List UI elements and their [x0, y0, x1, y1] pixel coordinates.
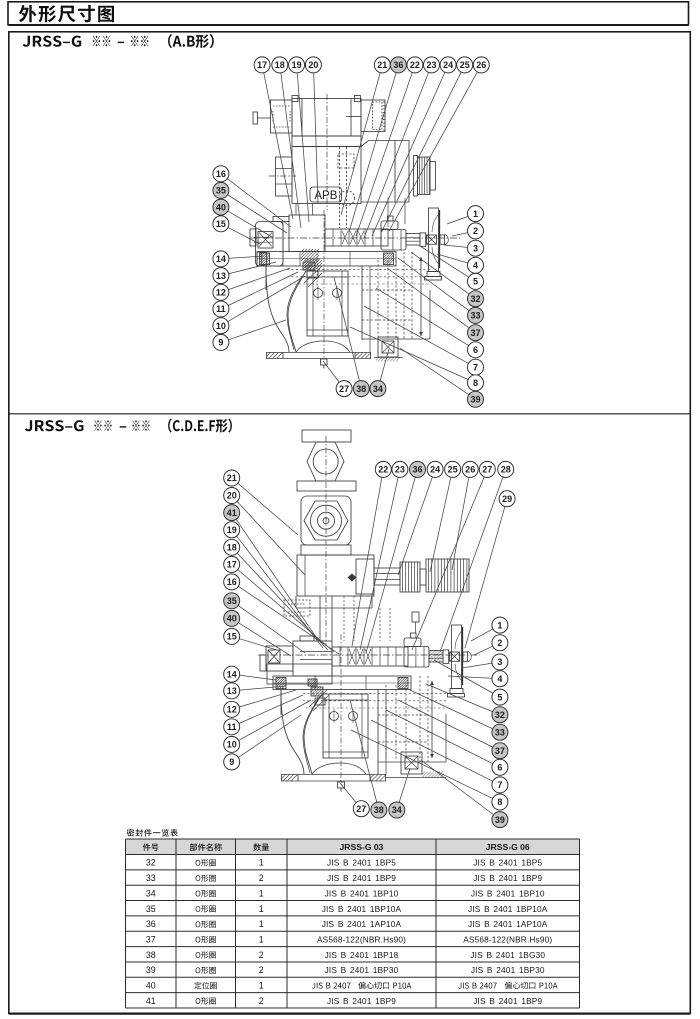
svg-text:27: 27: [356, 804, 366, 814]
svg-text:34: 34: [146, 888, 156, 898]
svg-text:20: 20: [227, 491, 237, 501]
svg-text:14: 14: [216, 254, 226, 264]
svg-text:2: 2: [259, 873, 264, 883]
svg-text:JRSS-G 03: JRSS-G 03: [340, 842, 384, 852]
svg-text:8: 8: [497, 797, 502, 807]
svg-text:26: 26: [476, 60, 486, 70]
svg-text:6: 6: [497, 763, 502, 773]
svg-text:32: 32: [495, 710, 505, 720]
svg-text:22: 22: [378, 465, 388, 475]
svg-text:28: 28: [501, 465, 511, 475]
svg-text:18: 18: [275, 60, 285, 70]
svg-text:17: 17: [257, 60, 267, 70]
svg-text:17: 17: [227, 560, 237, 570]
svg-text:14: 14: [227, 669, 237, 679]
svg-text:JIS B 2401 1BP9: JIS B 2401 1BP9: [327, 873, 396, 883]
svg-text:2: 2: [473, 226, 478, 236]
svg-text:19: 19: [227, 525, 237, 535]
svg-text:16: 16: [216, 169, 226, 179]
svg-text:40: 40: [216, 202, 226, 212]
svg-text:33: 33: [146, 873, 156, 883]
svg-text:12: 12: [227, 705, 237, 715]
svg-text:1: 1: [259, 904, 264, 914]
svg-text:1: 1: [473, 209, 478, 219]
svg-text:JIS B 2401 1BP9: JIS B 2401 1BP9: [473, 996, 542, 1006]
svg-text:2: 2: [259, 965, 264, 975]
svg-text:23: 23: [395, 465, 405, 475]
svg-text:34: 34: [373, 384, 383, 394]
svg-text:34: 34: [392, 805, 402, 815]
svg-text:4: 4: [497, 674, 502, 684]
svg-text:25: 25: [448, 465, 458, 475]
svg-text:JIS B 2401 1BP10: JIS B 2401 1BP10: [471, 888, 545, 898]
svg-text:41: 41: [146, 996, 156, 1006]
svg-text:38: 38: [374, 805, 384, 815]
svg-text:23: 23: [426, 60, 436, 70]
svg-text:32: 32: [470, 294, 480, 304]
svg-text:1: 1: [259, 981, 264, 991]
svg-text:JIS B 2401 1AP10A: JIS B 2401 1AP10A: [468, 919, 548, 929]
svg-text:20: 20: [308, 60, 318, 70]
svg-text:40: 40: [227, 614, 237, 624]
svg-text:18: 18: [227, 543, 237, 553]
svg-text:1: 1: [259, 888, 264, 898]
svg-text:11: 11: [227, 722, 237, 732]
svg-text:35: 35: [146, 904, 156, 914]
svg-text:41: 41: [227, 508, 237, 518]
svg-text:15: 15: [227, 632, 237, 642]
svg-text:27: 27: [482, 465, 492, 475]
svg-text:24: 24: [443, 60, 453, 70]
svg-text:37: 37: [495, 746, 505, 756]
svg-text:22: 22: [410, 60, 420, 70]
svg-text:10: 10: [227, 740, 237, 750]
svg-text:2: 2: [259, 950, 264, 960]
svg-text:39: 39: [495, 815, 505, 825]
svg-text:5: 5: [473, 277, 478, 287]
svg-text:JIS B 2401 1BP30: JIS B 2401 1BP30: [471, 965, 545, 975]
svg-text:15: 15: [216, 219, 226, 229]
svg-text:5: 5: [497, 692, 502, 702]
svg-text:AS568-122(NBR.Hs90): AS568-122(NBR.Hs90): [463, 934, 552, 944]
svg-text:JIS B 2401 1BP10A: JIS B 2401 1BP10A: [322, 904, 402, 914]
svg-text:27: 27: [339, 384, 349, 394]
svg-text:32: 32: [146, 858, 156, 868]
svg-text:26: 26: [465, 465, 475, 475]
svg-text:19: 19: [292, 60, 302, 70]
svg-text:AS568-122(NBR.Hs90): AS568-122(NBR.Hs90): [317, 934, 406, 944]
svg-text:40: 40: [146, 981, 156, 991]
svg-text:7: 7: [497, 780, 502, 790]
svg-text:JIS B 2401 1BP9: JIS B 2401 1BP9: [473, 873, 542, 883]
svg-text:JIS B 2401 1BG30: JIS B 2401 1BG30: [470, 950, 545, 960]
svg-text:8: 8: [473, 378, 478, 388]
svg-text:33: 33: [470, 311, 480, 321]
svg-text:16: 16: [227, 577, 237, 587]
svg-text:JIS B 2401 1BP18: JIS B 2401 1BP18: [325, 950, 399, 960]
svg-text:7: 7: [473, 362, 478, 372]
svg-text:JRSS-G 06: JRSS-G 06: [486, 842, 530, 852]
svg-text:39: 39: [470, 395, 480, 405]
svg-text:6: 6: [473, 345, 478, 355]
svg-text:JIS B 2401 1BP10A: JIS B 2401 1BP10A: [468, 904, 548, 914]
svg-text:29: 29: [502, 494, 512, 504]
svg-text:1: 1: [259, 858, 264, 868]
svg-text:9: 9: [218, 338, 223, 348]
svg-text:2: 2: [497, 638, 502, 648]
svg-text:13: 13: [216, 271, 226, 281]
svg-text:4: 4: [473, 261, 478, 271]
svg-text:3: 3: [473, 243, 478, 253]
svg-text:JIS B 2401 1AP10A: JIS B 2401 1AP10A: [322, 919, 402, 929]
svg-text:21: 21: [227, 473, 237, 483]
svg-text:2: 2: [259, 996, 264, 1006]
svg-text:35: 35: [227, 596, 237, 606]
svg-text:JIS B 2401 1BP5: JIS B 2401 1BP5: [473, 858, 542, 868]
svg-text:12: 12: [216, 288, 226, 298]
svg-text:35: 35: [216, 186, 226, 196]
svg-text:24: 24: [430, 465, 440, 475]
svg-text:25: 25: [460, 60, 470, 70]
svg-text:36: 36: [393, 60, 403, 70]
svg-text:3: 3: [497, 657, 502, 667]
svg-text:10: 10: [216, 321, 226, 331]
svg-text:11: 11: [216, 304, 226, 314]
svg-text:9: 9: [229, 757, 234, 767]
svg-text:37: 37: [470, 328, 480, 338]
svg-text:13: 13: [227, 686, 237, 696]
svg-text:JIS B 2401 1BP10: JIS B 2401 1BP10: [325, 888, 399, 898]
svg-text:1: 1: [497, 620, 502, 630]
svg-text:JIS B 2401 1BP30: JIS B 2401 1BP30: [325, 965, 399, 975]
svg-text:1: 1: [259, 934, 264, 944]
svg-text:38: 38: [146, 950, 156, 960]
svg-text:JIS B 2401 1BP9: JIS B 2401 1BP9: [327, 996, 396, 1006]
svg-text:21: 21: [377, 60, 387, 70]
svg-text:39: 39: [146, 965, 156, 975]
svg-text:37: 37: [146, 934, 156, 944]
svg-text:33: 33: [495, 727, 505, 737]
svg-text:JIS B 2401 1BP5: JIS B 2401 1BP5: [327, 858, 396, 868]
svg-text:36: 36: [146, 919, 156, 929]
svg-text:1: 1: [259, 919, 264, 929]
svg-text:36: 36: [412, 465, 422, 475]
svg-text:38: 38: [356, 384, 366, 394]
